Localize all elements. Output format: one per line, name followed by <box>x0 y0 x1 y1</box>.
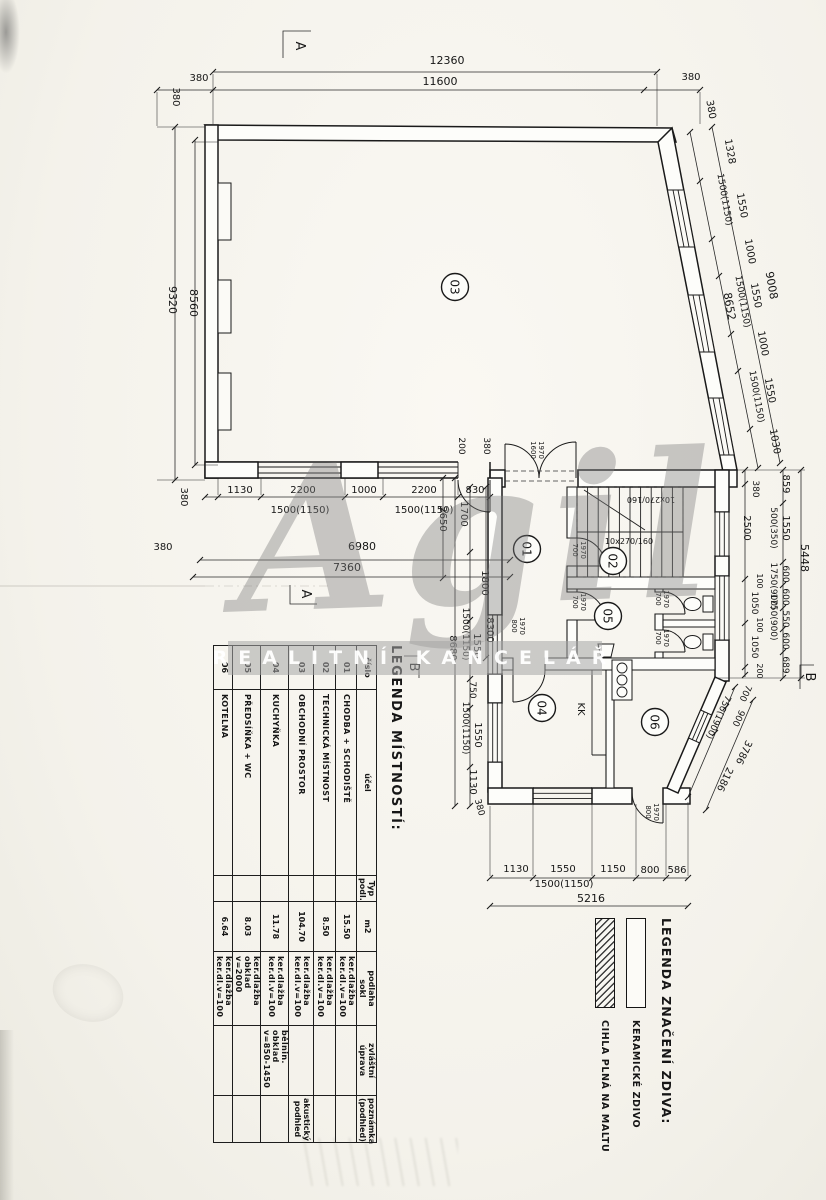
legend-cell: 02 <box>314 646 336 690</box>
legend-cell: ker.dlažba ker.dl.v=100 <box>214 952 233 1026</box>
dim-label: 2650 <box>437 506 448 531</box>
legend-row-03: 03OBCHODNÍ PROSTOR104.70ker.dlažba ker.d… <box>289 646 314 1143</box>
legend-header-cell: podlaha sokl <box>357 952 377 1026</box>
legend-row-01: 01CHODBA + SCHODIŠTĚ15.50ker.dlažba ker.… <box>336 646 357 1143</box>
dim-label: 100 <box>755 573 764 588</box>
dim-label: 1328 <box>722 138 737 165</box>
legend-cell: ker.dlažba ker.dl.v=100 <box>336 952 357 1026</box>
legend-item-keramicke-zdivo: KERAMICKÉ ZDIVO <box>625 918 647 1163</box>
legend-cell <box>214 1096 233 1143</box>
dim-label: 380 <box>178 487 189 506</box>
dim-label: KK <box>575 702 586 716</box>
room-number: 02 <box>606 553 620 568</box>
walls-legend: LEGENDA ZNAČENÍ ZDIVA: KERAMICKÉ ZDIVO C… <box>594 918 674 1163</box>
legend-cell: 03 <box>289 646 314 690</box>
scanned-floor-plan-page: 010203040506 123601160038038038038093208… <box>0 0 826 1200</box>
legend-cell: 15.50 <box>336 902 357 952</box>
legend-cell: 04 <box>261 646 289 690</box>
legend-cell: akustický podhled <box>289 1096 314 1143</box>
dim-label: 1970 <box>579 541 587 559</box>
dim-label: 900 <box>730 708 746 728</box>
dim-label: 1150 <box>600 864 625 875</box>
dim-label: 9320 <box>166 286 179 314</box>
legend-cell: 11.78 <box>261 902 289 952</box>
dim-label: 8300 <box>484 617 495 642</box>
legend-cell: ker.dlažba ker.dl.v=100 <box>314 952 336 1026</box>
legend-cell: TECHNICKÁ MÍSTNOST <box>314 690 336 876</box>
dim-label: 12360 <box>430 54 465 67</box>
legend-cell: PŘEDSÍŇKA + WC <box>233 690 261 876</box>
dim-label: 1500(1150) <box>460 702 470 755</box>
dim-label: 700 <box>654 592 662 605</box>
dim-label: 11600 <box>423 75 458 88</box>
dim-label: 700 <box>571 543 579 556</box>
dim-label: 200 <box>755 663 764 678</box>
dim-label: A <box>292 42 307 51</box>
dim-label: 1550 <box>780 515 791 540</box>
dim-label: 380 <box>189 73 208 84</box>
legend-header-cell: poznámka (podhled) <box>357 1096 377 1143</box>
dim-label: 1000 <box>742 238 757 265</box>
dim-label: 1050 <box>749 636 759 659</box>
dim-label: 8680 <box>447 635 458 660</box>
legend-cell: OBCHODNÍ PROSTOR <box>289 690 314 876</box>
legend-header-cell: m2 <box>357 902 377 952</box>
rooms-legend: LEGENDA MÍSTNOSTÍ: čísloúčelTyp podl.m2p… <box>213 645 403 1145</box>
dim-label: 750 <box>467 681 477 698</box>
legend-cell <box>314 1096 336 1143</box>
dim-label: 10x270/160 <box>605 537 653 546</box>
dim-label: 1500(1150) <box>714 173 733 227</box>
dim-label: 7360 <box>333 561 361 574</box>
rooms-legend-title: LEGENDA MÍSTNOSTÍ: <box>377 645 403 1145</box>
dim-label: 586 <box>667 865 686 876</box>
dim-label: 600 <box>780 588 790 605</box>
legend-cell <box>336 876 357 902</box>
legend-cell: 01 <box>336 646 357 690</box>
dim-label: B <box>802 673 817 682</box>
dim-label: 1970 <box>662 590 670 608</box>
dim-label: 600 <box>780 632 790 649</box>
legend-cell <box>314 876 336 902</box>
dim-label: 380 <box>750 480 760 497</box>
dim-label: 500(350) <box>768 507 778 548</box>
legend-cell: KUCHYŇKA <box>261 690 289 876</box>
legend-cell <box>261 876 289 902</box>
dim-label: 1000 <box>755 330 770 357</box>
dim-label: 600 <box>780 565 790 582</box>
room-number: 05 <box>601 608 615 623</box>
ceramic-masonry-swatch <box>626 918 646 1008</box>
legend-cell <box>336 1096 357 1143</box>
legend-cell: KOTELNA <box>214 690 233 876</box>
dim-label: 1030 <box>767 428 782 455</box>
dim-label: 1130 <box>503 864 528 875</box>
legend-cell <box>261 1096 289 1143</box>
dim-label: 1500(1150) <box>271 505 330 516</box>
legend-cell <box>336 1026 357 1096</box>
dim-label: 380 <box>472 798 486 817</box>
scan-edge-shadow <box>0 1030 14 1200</box>
dim-label: B <box>406 663 421 672</box>
dim-label: 100 <box>755 617 764 632</box>
dim-label: 1970 <box>579 593 587 611</box>
dim-label: 1970 <box>662 629 670 647</box>
dim-label: 1550 <box>472 722 483 747</box>
dim-label: 1970 <box>518 617 526 635</box>
dim-label: 550 <box>780 610 790 627</box>
legend-cell: bělnin. obklad v=850-1450 <box>261 1026 289 1096</box>
dim-label: 2200 <box>411 485 436 496</box>
dim-label: 1700 <box>458 501 469 526</box>
dim-label: 200 <box>456 437 466 454</box>
solid-brick-hatch-swatch <box>595 918 615 1008</box>
legend-cell <box>214 876 233 902</box>
legend-cell: 104.70 <box>289 902 314 952</box>
dim-label: 5448 <box>798 544 811 572</box>
dim-label: 1550 <box>471 633 482 658</box>
scan-blemish <box>0 0 20 74</box>
dim-label: 1550 <box>762 377 777 404</box>
rooms-legend-table: čísloúčelTyp podl.m2podlaha soklzvláštní… <box>213 645 377 1143</box>
dim-label: 3786 <box>733 738 754 766</box>
legend-header-cell: Typ podl. <box>357 876 377 902</box>
dim-label: 1550 <box>734 192 749 219</box>
dim-label: 800 <box>644 805 652 818</box>
dim-label: 1600 <box>529 441 537 459</box>
dim-label: 700 <box>571 595 579 608</box>
dim-label: 2186 <box>714 765 735 793</box>
room-number: 04 <box>535 700 549 715</box>
legend-cell: 05 <box>233 646 261 690</box>
legend-cell: 6.64 <box>214 902 233 952</box>
boiler-stove-symbol <box>612 660 632 700</box>
room-number: 01 <box>520 541 534 556</box>
legend-cell <box>289 876 314 902</box>
dim-label: 380 <box>170 87 181 106</box>
legend-header-cell: účel <box>357 690 377 876</box>
dim-label: 8652 <box>721 291 739 321</box>
dim-label: 380 <box>681 72 700 83</box>
legend-cell: CHODBA + SCHODIŠTĚ <box>336 690 357 876</box>
walls-legend-title: LEGENDA ZNAČENÍ ZDIVA: <box>659 918 674 1163</box>
dim-label: 1800 <box>479 570 490 595</box>
dim-label: 1750(900) <box>768 593 778 640</box>
dim-label: A <box>298 590 313 599</box>
dim-label: 1550 <box>748 282 763 309</box>
legend-cell: 8.03 <box>233 902 261 952</box>
legend-cell <box>233 876 261 902</box>
room-number: 06 <box>648 714 662 729</box>
dim-label: 1500(1150) <box>460 608 470 661</box>
legend-row-05: 05PŘEDSÍŇKA + WC8.03ker.dlažba obklad v=… <box>233 646 261 1143</box>
dim-label: 380 <box>481 437 491 454</box>
dim-label: 689 <box>780 656 790 673</box>
dim-label: 2500 <box>741 515 752 540</box>
dim-label: 800 <box>640 865 659 876</box>
dim-label: 1970 <box>537 441 545 459</box>
legend-cell <box>214 1026 233 1096</box>
dim-label: 1500(1150) <box>535 879 594 890</box>
legend-cell: ker.dlažba ker.dl.v=100 <box>289 952 314 1026</box>
dim-label: 800 <box>510 619 518 632</box>
legend-cell: 8.50 <box>314 902 336 952</box>
legend-cell <box>233 1026 261 1096</box>
legend-cell <box>314 1026 336 1096</box>
toilet-symbol <box>684 596 713 612</box>
dim-label: 380 <box>703 99 717 120</box>
dim-label: 700 <box>737 683 753 703</box>
dim-label: 830 <box>465 485 484 496</box>
legend-cell <box>233 1096 261 1143</box>
dim-label: 10x270/160 <box>627 495 675 504</box>
legend-row-02: 02TECHNICKÁ MÍSTNOST8.50ker.dlažba ker.d… <box>314 646 336 1143</box>
floor-plan-drawing: 010203040506 123601160038038038038093208… <box>0 0 826 1200</box>
pencil-smudge <box>298 1138 458 1186</box>
dim-label: 2200 <box>290 485 315 496</box>
legend-row-06: 06KOTELNA6.64ker.dlažba ker.dl.v=100 <box>214 646 233 1143</box>
dim-label: 8560 <box>187 289 200 317</box>
dim-label: 1050 <box>749 592 759 615</box>
dim-label: 1970 <box>652 803 660 821</box>
legend-row-04: 04KUCHYŇKA11.78ker.dlažba ker.dl.v=100bě… <box>261 646 289 1143</box>
dim-label: 1130 <box>227 485 252 496</box>
dim-label: 9008 <box>763 270 781 300</box>
legend-header-cell: zvláštní úprava <box>357 1026 377 1096</box>
legend-cell: ker.dlažba ker.dl.v=100 <box>261 952 289 1026</box>
dim-label: 380 <box>153 542 172 553</box>
dim-label: 859 <box>780 474 791 493</box>
dim-label: 5216 <box>577 892 605 905</box>
dim-label: 700 <box>654 631 662 644</box>
dim-label: 1000 <box>351 485 376 496</box>
room-number: 03 <box>448 279 462 294</box>
dim-label: 1550 <box>550 864 575 875</box>
toilet-symbol <box>684 634 713 650</box>
legend-item-cihla-plna: CIHLA PLNÁ NA MALTU <box>594 918 616 1163</box>
dim-label: 6980 <box>348 540 376 553</box>
legend-header-cell: číslo <box>357 646 377 690</box>
washbasin-symbol <box>598 644 614 657</box>
legend-cell <box>289 1026 314 1096</box>
dim-label: 1130 <box>467 769 478 794</box>
legend-cell: 06 <box>214 646 233 690</box>
legend-cell: ker.dlažba obklad v=2000 <box>233 952 261 1026</box>
